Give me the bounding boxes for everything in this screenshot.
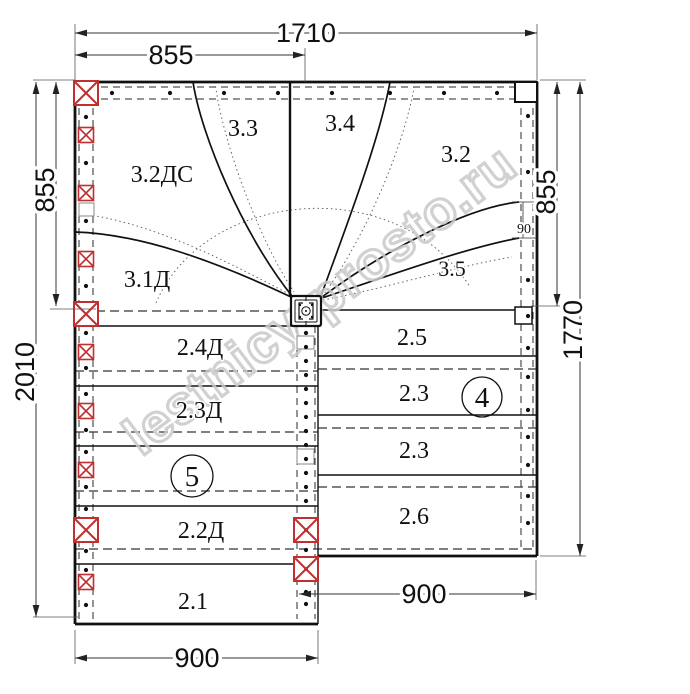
label-step-2-4d: 2.4Д xyxy=(177,335,223,361)
label-step-3-4: 3.4 xyxy=(325,111,355,137)
label-step-3-2ds: 3.2ДС xyxy=(131,162,193,188)
dim-right-height-total: 1770 xyxy=(558,300,588,360)
label-step-2-2d: 2.2Д xyxy=(178,518,224,544)
dim-left-height-upper: 855 xyxy=(30,167,60,212)
central-post xyxy=(291,296,321,326)
label-step-2-1: 2.1 xyxy=(178,589,208,615)
label-step-2-3-lower: 2.3 xyxy=(399,438,429,464)
dim-lower-left-width: 900 xyxy=(174,643,219,673)
label-step-2-3-upper: 2.3 xyxy=(399,381,429,407)
label-step-2-6: 2.6 xyxy=(399,504,429,530)
callout-number-5: 5 xyxy=(185,461,200,493)
dim-upper-left-width: 855 xyxy=(148,40,193,70)
label-step-2-5: 2.5 xyxy=(397,325,427,351)
callout-number-4: 4 xyxy=(475,382,490,414)
staircase-plan-drawing: lestnicy-prosto.ru xyxy=(0,0,690,694)
dim-left-height-total: 2010 xyxy=(10,342,40,402)
label-step-3-3: 3.3 xyxy=(228,116,258,142)
staircase-plan-page: lestnicy-prosto.ru xyxy=(0,0,690,694)
label-step-3-1d: 3.1Д xyxy=(124,267,170,293)
dim-lower-right-width: 900 xyxy=(401,579,446,609)
label-step-2-3d: 2.3Д xyxy=(176,398,222,424)
dim-right-height-upper: 855 xyxy=(531,169,561,214)
label-step-3-2: 3.2 xyxy=(441,142,471,168)
dim-winder-step-width: 90 xyxy=(517,222,531,237)
label-step-3-5: 3.5 xyxy=(438,256,466,281)
dim-total-width: 1710 xyxy=(276,18,336,48)
